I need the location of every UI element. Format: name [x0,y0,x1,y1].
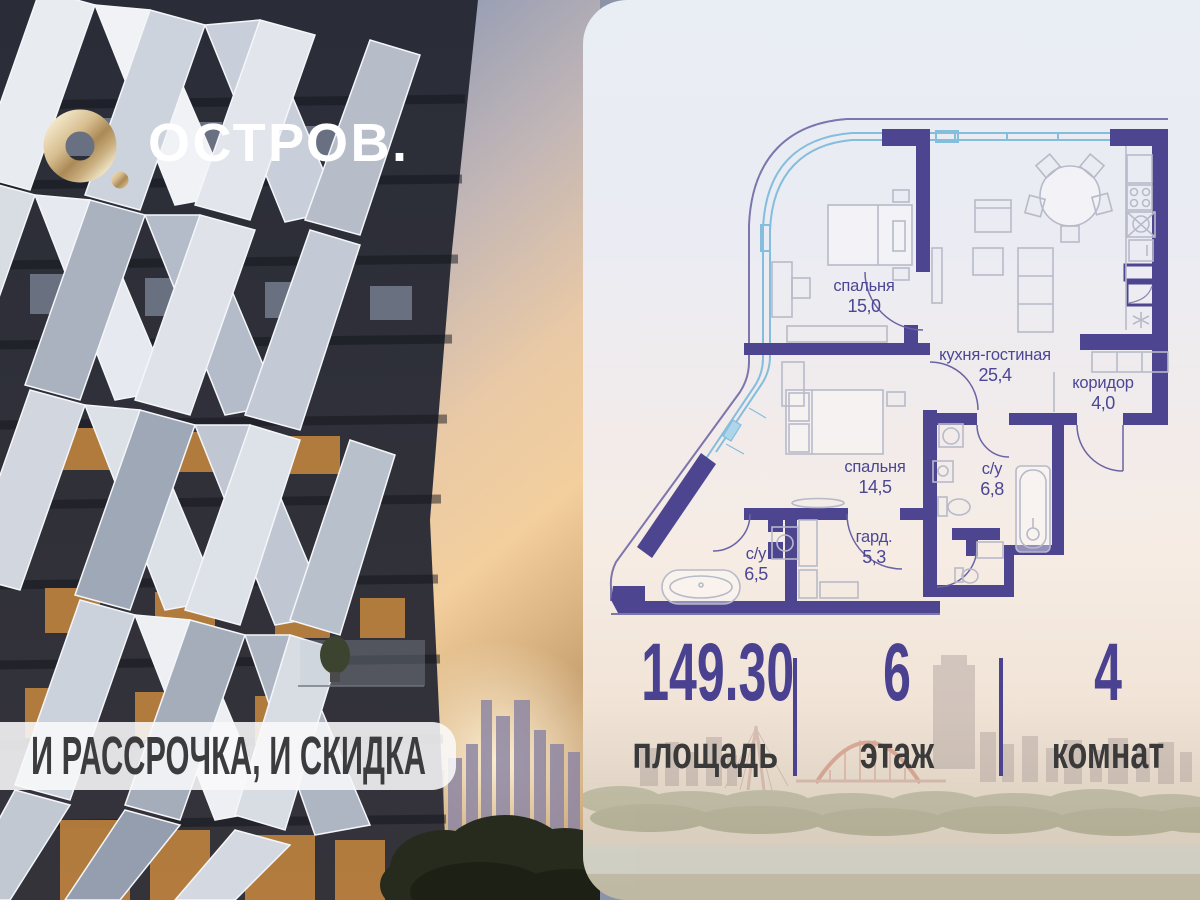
room-label-bedroom-2: спальня 14,5 [844,458,905,498]
stats-row: 149.30 площадь 6 этаж 4 комнат [583,640,1200,810]
real-estate-ad: ОСТРОВ. И РАССРОЧКА, И СКИДКА [0,0,1200,900]
room-label-bathroom-2: с/у 6,5 [744,545,768,585]
room-label-bathroom-1: с/у 6,8 [980,460,1004,500]
stat-floor-value: 6 [848,640,946,706]
stat-area-value: 149.30 [641,640,739,706]
stat-floor: 6 этаж [817,640,977,773]
stats-divider-2 [999,658,1003,776]
stat-area: 149.30 площадь [610,640,770,773]
brand-logo-text: ОСТРОВ. [148,112,409,180]
brand-logo: ОСТРОВ. [40,102,409,190]
stats-divider-1 [793,658,797,776]
room-label-wardrobe: гард. 5,3 [856,528,893,568]
promo-banner: И РАССРОЧКА, И СКИДКА [0,722,456,790]
room-label-bedroom-1: спальня 15,0 [833,277,894,317]
stat-area-label: площадь [632,733,747,773]
stat-floor-label: этаж [839,733,954,773]
stat-rooms-value: 4 [1059,640,1157,706]
room-label-kitchen-living: кухня-гостиная 25,4 [939,346,1051,386]
stat-rooms-label: комнат [1050,733,1165,773]
brand-logo-ring-icon [40,102,132,190]
stat-rooms: 4 комнат [1028,640,1188,773]
balcony-tree [298,636,425,686]
floorplan-panel: спальня 15,0 кухня-гостиная 25,4 коридор… [583,0,1200,900]
room-label-corridor: коридор 4,0 [1072,374,1134,414]
promo-banner-text: И РАССРОЧКА, И СКИДКА [31,725,426,787]
